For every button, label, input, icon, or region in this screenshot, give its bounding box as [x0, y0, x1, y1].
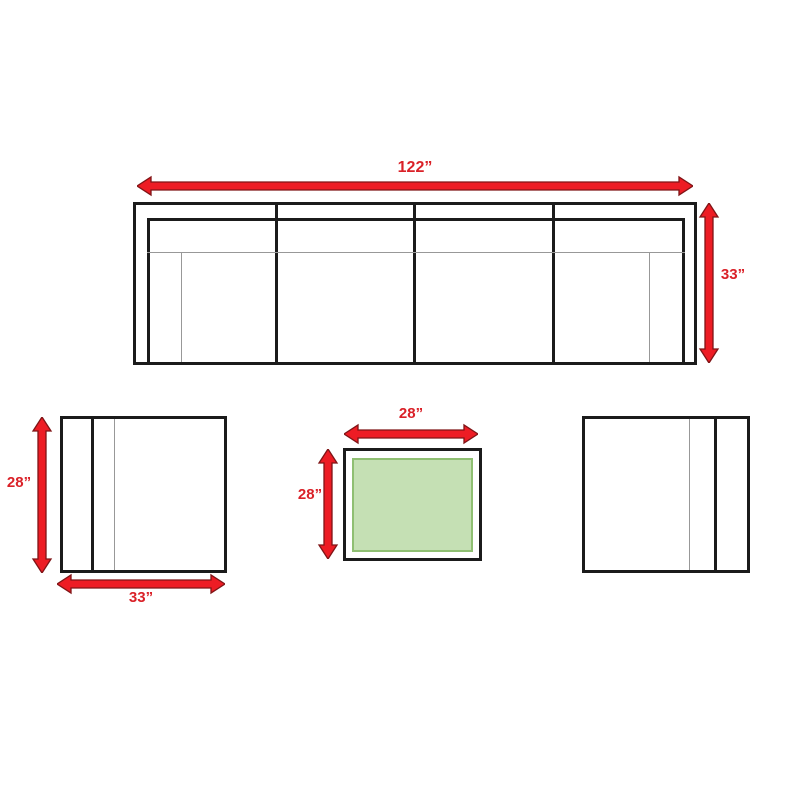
left-chair-back-line — [91, 419, 94, 570]
sofa-depth-label: 33” — [716, 267, 750, 283]
sofa-seat-line — [147, 252, 685, 253]
right-chair-back-line — [714, 419, 717, 570]
left-chair-cushion-line — [114, 419, 115, 570]
right-chair-outline — [582, 416, 750, 573]
table-depth-label: 28” — [292, 487, 328, 503]
sofa-section-divider-1 — [275, 205, 278, 362]
furniture-dimension-diagram: 122” 33” 28” 33” 28” 28” — [0, 0, 800, 800]
table-width-arrow — [344, 423, 478, 445]
sofa-right-arm-line — [649, 252, 650, 362]
sofa-left-arm-line — [181, 252, 182, 362]
chair-width-label: 33” — [57, 590, 225, 606]
right-chair-cushion-line — [689, 419, 690, 570]
sofa-section-divider-3 — [552, 205, 555, 362]
chair-depth-label: 28” — [2, 475, 36, 491]
sofa-inner-frame — [147, 218, 685, 365]
left-chair-outline — [60, 416, 227, 573]
coffee-table-outline — [343, 448, 482, 561]
coffee-table-glass-top — [352, 458, 473, 552]
table-width-label: 28” — [344, 406, 478, 422]
sofa-outline — [133, 202, 697, 365]
sofa-width-arrow — [137, 175, 693, 197]
sofa-section-divider-2 — [413, 205, 416, 362]
sofa-depth-arrow — [698, 203, 720, 363]
table-depth-arrow — [317, 449, 339, 559]
chair-depth-arrow — [31, 417, 53, 573]
